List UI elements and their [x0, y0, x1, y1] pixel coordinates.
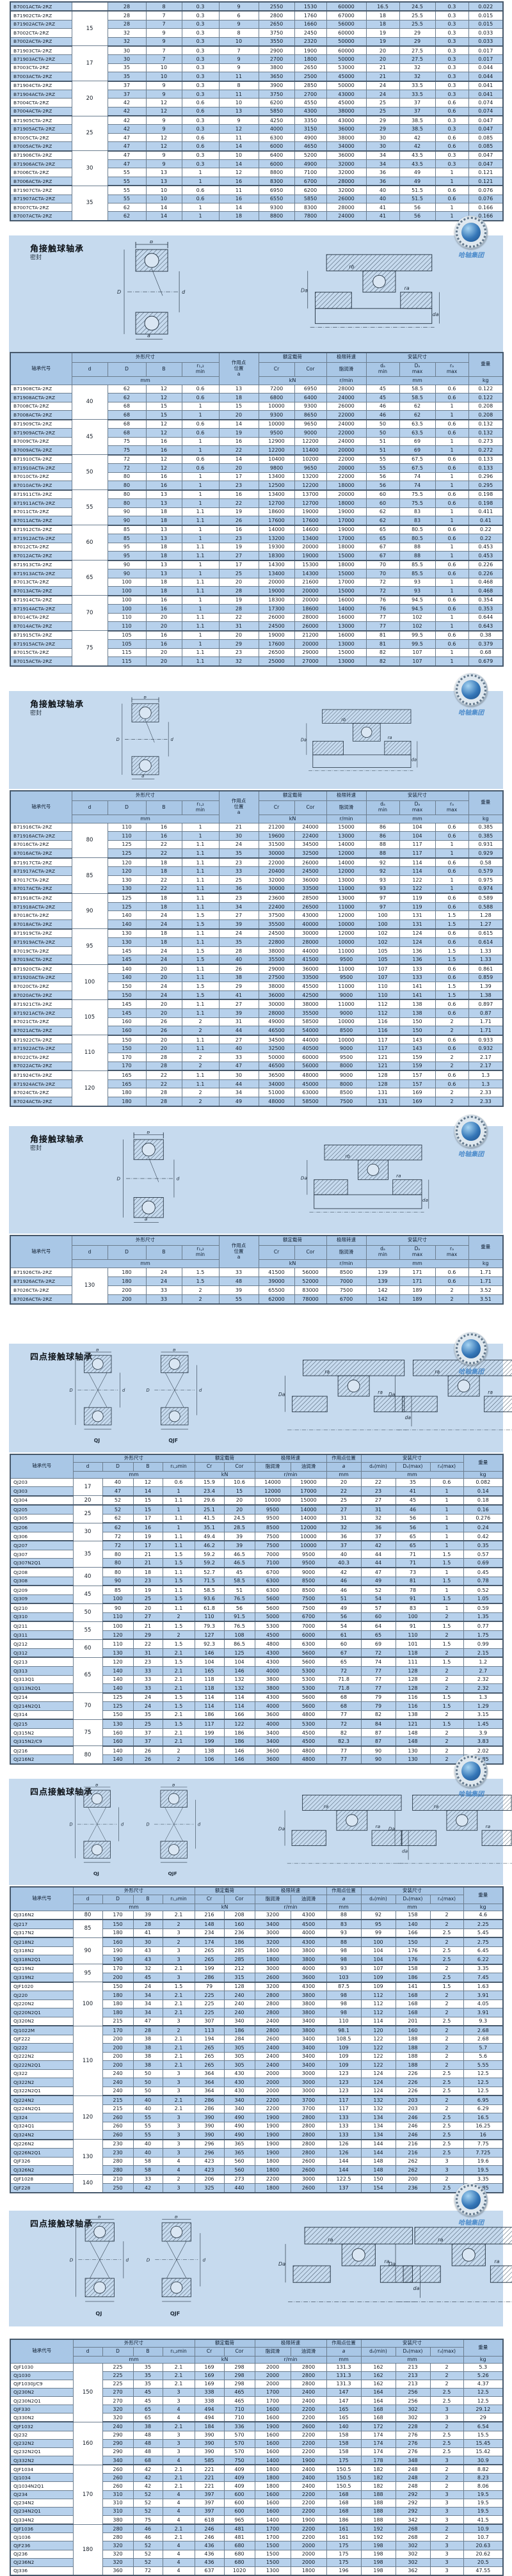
cell-value: 24 — [219, 929, 259, 938]
cell-value: 33500 — [294, 973, 326, 982]
cell-value: 0.99 — [463, 1639, 503, 1648]
cell-value: 16 — [219, 177, 259, 186]
cell-value: 146 — [195, 1648, 224, 1657]
cell-value: 13200 — [294, 472, 326, 481]
globe-icon — [461, 2190, 481, 2209]
dim-label-d: d — [171, 737, 174, 742]
cell-value: 114 — [195, 1693, 224, 1702]
cell-value: 50000 — [326, 37, 366, 46]
cell-value: 7500 — [255, 1541, 291, 1550]
company-logo: 哈轴集团 — [452, 673, 490, 717]
cell-value: 226 — [396, 2087, 430, 2095]
cell-value: 1 — [430, 1505, 463, 1514]
cell-value: 144 — [361, 2140, 396, 2149]
cell-value: 113 — [195, 2026, 224, 2035]
cell-value: 29 — [399, 29, 435, 37]
cell-value: 12 — [146, 107, 182, 116]
cell-value: 1 — [182, 168, 219, 177]
cell-model: QJ234N2 — [10, 2499, 73, 2507]
cell-value: 180 — [108, 1276, 146, 1285]
cell-value: 42 — [361, 1541, 396, 1550]
cell-value: 2400 — [255, 2017, 291, 2026]
cell-value: 50 — [366, 420, 399, 429]
cell-value: 40 — [133, 2149, 163, 2158]
table-row: QJ21155100211.579.376.5530070005464911.5… — [10, 1621, 503, 1630]
cell-value: 35500 — [294, 1008, 326, 1017]
cell-value: 1900 — [255, 2122, 291, 2131]
cell-value: 150 — [108, 982, 146, 991]
cell-value: 125 — [108, 902, 146, 911]
cell-value: 54000 — [294, 1026, 326, 1035]
cell-value: 2200 — [255, 2095, 291, 2104]
cell-value: 3.35 — [463, 2175, 503, 2184]
cell-value: 140 — [326, 2422, 361, 2431]
cell-value: 12 — [219, 125, 259, 133]
cell-model: QJF222 — [10, 2035, 73, 2044]
cell-value: 2200 — [291, 2524, 326, 2533]
cell-value: 365 — [224, 2140, 255, 2149]
cell-value: 165 — [108, 1070, 146, 1079]
cell-value: 1 — [435, 876, 468, 885]
cell-value: 10200 — [294, 455, 326, 464]
cell-value: 31500 — [259, 840, 294, 849]
table-row: QJ2031740120.615.910.614000190002022350.… — [10, 1478, 503, 1487]
cell-value: 0.59 — [463, 1603, 503, 1612]
cell-value: 110 — [366, 982, 399, 991]
cell-value: 390 — [195, 2431, 224, 2439]
cell-value: 1800 — [255, 2157, 291, 2166]
cell-value: 436 — [195, 2550, 224, 2558]
cell-value: 3650 — [259, 72, 294, 81]
cell-value: 16000 — [326, 613, 366, 622]
cell-model: B7016ACTA-2RZ — [10, 849, 72, 858]
cell-value: 1.35 — [463, 1612, 503, 1621]
cell-model: QJ224N2 — [10, 2095, 73, 2104]
cell-value: 0.6 — [435, 534, 468, 543]
cell-value: 131.3 — [326, 2380, 361, 2388]
cell-model: B7014CTA-2RZ — [10, 613, 72, 622]
cell-value: 28000 — [294, 613, 326, 622]
cell-value: 20000 — [259, 578, 294, 587]
cell-value: 14000 — [291, 1505, 326, 1514]
cell-value: 46.5 — [224, 1559, 255, 1568]
cell-value: 2000 — [255, 2380, 291, 2388]
cell-value: 114 — [361, 2017, 396, 2026]
cell-value: 0.614 — [468, 938, 503, 947]
cell-value: 0.121 — [468, 168, 503, 177]
cell-model: B7017ACTA-2RZ — [10, 884, 72, 893]
cell-value: 2.1 — [163, 1675, 195, 1684]
cell-value: 38 — [133, 2052, 163, 2061]
cell-value: 100 — [366, 911, 399, 920]
cell-model: QJ220N2Q1 — [10, 2008, 73, 2017]
cell-value: 213 — [396, 2380, 430, 2388]
cell-value: 158 — [326, 2447, 361, 2456]
cell-value: 19.5 — [463, 2166, 503, 2175]
table-row: B71922CTA-2RZ110150201.12734500440001000… — [10, 1035, 503, 1044]
cell-value: 1600 — [255, 2413, 291, 2422]
cell-value: 2 — [430, 1964, 463, 1973]
cell-value: 16 — [463, 2131, 503, 2140]
cell-value: 105 — [108, 640, 146, 649]
cell-value: 6700 — [291, 1612, 326, 1621]
cell-value: 45 — [224, 1568, 255, 1577]
cell-value: 1 — [182, 561, 219, 569]
cell-bore: 25 — [72, 116, 108, 151]
cell-value: 6950 — [294, 385, 326, 394]
cell-value: 74 — [361, 1657, 396, 1666]
cell-value: 69 — [399, 437, 435, 446]
cell-value: 0.132 — [468, 420, 503, 429]
cell-model: QJF1028 — [10, 2175, 73, 2184]
cell-model: B7007ACTA-2RZ — [10, 212, 72, 221]
cell-value: 109 — [361, 1973, 396, 1982]
cell-value: 28 — [146, 1097, 182, 1106]
cell-value: 6700 — [255, 1568, 291, 1577]
cell-value: 16 — [146, 437, 182, 446]
cell-value: 465 — [224, 2397, 255, 2405]
cell-value: 93 — [399, 578, 435, 587]
cell-value: 2.1 — [163, 2380, 195, 2388]
cell-value: 4.6 — [463, 1911, 503, 1920]
cell-value: 27 — [219, 1035, 259, 1044]
cell-value: 0.3 — [182, 37, 219, 46]
cell-value: 7 — [146, 55, 182, 63]
cell-value: 3800 — [255, 1684, 291, 1693]
cell-value: 62 — [399, 411, 435, 420]
cell-value: 157 — [399, 1070, 435, 1079]
cell-value: 0.6 — [435, 142, 468, 151]
cell-value: 1.5 — [435, 911, 468, 920]
dim-label-ra2: ra — [488, 1389, 493, 1395]
cell-value: 94.5 — [399, 605, 435, 614]
cell-value: 162 — [361, 2363, 396, 2371]
cell-value: 2.33 — [468, 1088, 503, 1097]
cell-value: 10000 — [291, 1541, 326, 1550]
cell-value: 75 — [108, 446, 146, 455]
cell-value: 2.68 — [463, 2026, 503, 2035]
cell-value: 50 — [133, 2087, 163, 2095]
cell-value: 0.6 — [435, 464, 468, 473]
cell-value: 5300 — [291, 1666, 326, 1675]
cell-model: B7016CTA-2RZ — [10, 840, 72, 849]
cell-model: B71918ACTA-2RZ — [10, 902, 72, 911]
cell-value: 55 — [108, 177, 146, 186]
cell-bore: 120 — [73, 2095, 102, 2140]
cell-value: 236 — [224, 1928, 255, 1937]
cell-value: 158 — [326, 2431, 361, 2439]
cell-value: 14 — [146, 203, 182, 211]
cell-value: 138 — [399, 1008, 435, 1017]
cell-value: 82.3 — [326, 1737, 361, 1746]
cell-value: 60 — [326, 1639, 361, 1648]
cell-value: 2.5 — [430, 2069, 463, 2078]
cell-value: 1.5 — [163, 1550, 195, 1559]
cell-value: 4 — [163, 2166, 195, 2175]
cell-value: 44 — [361, 1559, 396, 1568]
table-row: QJ3042052151.129.620100001500025274510.1… — [10, 1496, 503, 1506]
cell-value: 48 — [133, 2447, 163, 2456]
cell-value: 170 — [108, 1061, 146, 1070]
cell-model: QJ205 — [10, 1505, 73, 1514]
cell-value: 84 — [361, 1719, 396, 1728]
table-row: B71916CTA-2RZ801101612121200240001500086… — [10, 823, 503, 832]
cell-value: 24 — [146, 955, 182, 964]
cell-value: 30 — [366, 133, 399, 141]
cell-model: QJ322 — [10, 2069, 73, 2078]
cell-value: 4300 — [291, 1937, 326, 1946]
cell-value: 10.6 — [224, 1478, 255, 1487]
cell-model: B71924ACTA-2RZ — [10, 1079, 72, 1088]
cell-value: 364 — [195, 2069, 224, 2078]
cell-value: 72 — [102, 1532, 133, 1541]
cell-value: 65 — [366, 534, 399, 543]
table-header: 轴承代号外形尺寸额定载荷极限转速作用点位置安装尺寸重量dDBr₁,₂minCrC… — [10, 1887, 503, 1911]
cell-value: 28000 — [259, 1008, 294, 1017]
cell-value: 83000 — [294, 1285, 326, 1294]
cell-model: B71908ACTA-2RZ — [10, 394, 72, 402]
cell-value: 2.17 — [468, 1053, 503, 1061]
section-subtitle: 密封 — [30, 708, 42, 717]
cell-value: 0.6 — [163, 1478, 195, 1487]
cell-value: 114 — [399, 858, 435, 867]
cell-value: 180 — [108, 1088, 146, 1097]
cell-value: 134 — [361, 2122, 396, 2131]
cell-value: 55 — [219, 1294, 259, 1304]
cell-value: 128 — [396, 1675, 430, 1684]
cell-value: 0.276 — [463, 1514, 503, 1523]
cell-value: 2 — [163, 1746, 195, 1755]
cell-value: 3 — [163, 2069, 195, 2078]
cell-value: 320 — [102, 2413, 133, 2422]
cell-model: QJ315N2/C9 — [10, 1737, 73, 1746]
cell-bore: 95 — [72, 929, 108, 964]
cell-value: 97 — [366, 893, 399, 902]
cell-value: 1.1 — [182, 999, 219, 1008]
cell-value: 100 — [108, 587, 146, 596]
cell-value: 21 — [133, 1559, 163, 1568]
cell-value: 0.3 — [182, 2, 219, 11]
cell-value: 2.1 — [163, 2035, 195, 2044]
cell-value: 160 — [102, 1728, 133, 1737]
cell-value: 22 — [146, 1070, 182, 1079]
cell-value: 175 — [326, 2550, 361, 2558]
cell-value: 215 — [102, 2104, 133, 2113]
cell-value: 45 — [133, 2388, 163, 2396]
cell-value: 40.3 — [326, 1559, 361, 1568]
cell-value: 2.1 — [163, 2422, 195, 2431]
cell-model: QJ1034N2Q1 — [10, 2482, 73, 2490]
cell-value: 0.379 — [468, 640, 503, 649]
cell-value: 3000 — [291, 2069, 326, 2078]
cell-value: 226 — [396, 2078, 430, 2087]
cell-value: 20 — [146, 1008, 182, 1017]
cell-bore: 110 — [73, 2026, 102, 2095]
cell-value: 1 — [182, 640, 219, 649]
table-row: B71917CTA-2RZ85120181.123220002600014000… — [10, 858, 503, 867]
cell-value: 97 — [366, 902, 399, 911]
cell-value: 42 — [133, 2482, 163, 2490]
cell-value: 45000 — [294, 1079, 326, 1088]
cell-value: 133 — [326, 2122, 361, 2131]
cell-value: 68 — [133, 2456, 163, 2465]
cell-value: 165 — [326, 2405, 361, 2413]
cell-bore: 105 — [72, 999, 108, 1035]
cell-value: 2.1 — [163, 2061, 195, 2070]
cell-value: 68 — [108, 402, 146, 411]
cell-value: 0.3 — [182, 55, 219, 63]
cell-value: 2 — [435, 1088, 468, 1097]
cell-value: 28 — [146, 1088, 182, 1097]
cell-model: B71926CTA-2RZ — [10, 1268, 72, 1276]
cell-value: 10000 — [259, 420, 294, 429]
cell-value: 93 — [366, 876, 399, 885]
cell-value: 80 — [108, 499, 146, 508]
cell-value: 180 — [102, 1991, 133, 2000]
cell-value: 123 — [326, 2078, 361, 2087]
cell-value: 0.132 — [468, 429, 503, 438]
cell-value: 15000 — [326, 569, 366, 578]
cell-value: 0.6 — [435, 867, 468, 876]
cell-bore: 50 — [73, 1603, 102, 1621]
cell-value: 4550 — [294, 99, 326, 107]
cell-value: 276 — [396, 2439, 430, 2447]
cell-value: 32500 — [294, 849, 326, 858]
cell-value: 481 — [224, 2533, 255, 2541]
table-row: B71912CTA-2RZ608513116140001460019000658… — [10, 525, 503, 534]
cell-value: 1 — [435, 657, 468, 666]
cell-value: 1.1 — [163, 1603, 195, 1612]
cell-value: 2400 — [291, 2465, 326, 2474]
cell-value: 30.9 — [463, 2456, 503, 2465]
cell-value: 184 — [195, 2422, 224, 2431]
cell-value: 131 — [366, 1088, 399, 1097]
cell-model: QJ1022M — [10, 2026, 73, 2035]
cell-value: 225 — [102, 2371, 133, 2380]
cell-value: 17 — [219, 561, 259, 569]
cell-value: 2.5 — [430, 2447, 463, 2456]
cell-value: 2400 — [255, 2061, 291, 2070]
cell-value: 112 — [361, 1991, 396, 2000]
cell-value: 52 — [133, 2550, 163, 2558]
cell-value: 1 — [435, 507, 468, 516]
cell-value: 26000 — [294, 858, 326, 867]
table-row: B71920CTA-2RZ100140201.12629000360001100… — [10, 964, 503, 973]
cell-value: 56 — [326, 1612, 361, 1621]
cell-value: 90 — [102, 1603, 133, 1612]
cell-value: 150 — [102, 1982, 133, 1991]
cell-value: 165 — [326, 2413, 361, 2422]
cell-value: 35 — [396, 1478, 430, 1487]
cell-value: 32500 — [259, 1044, 294, 1053]
cell-value: 1.5 — [435, 990, 468, 999]
cell-value: 1 — [430, 1586, 463, 1594]
dim-label-B: B — [147, 1131, 150, 1135]
cell-value: 0.047 — [468, 116, 503, 125]
table-row: QJ218N290160302174186320043008810015022.… — [10, 1937, 503, 1946]
cell-value: 23 — [219, 893, 259, 902]
cell-value: 2400 — [255, 2052, 291, 2061]
cell-value: 7500 — [326, 1285, 366, 1294]
cell-value: 1900 — [255, 2131, 291, 2140]
globe-icon — [461, 223, 481, 242]
cell-value: 2.1 — [163, 1991, 195, 2000]
cell-bore: 130 — [73, 2140, 102, 2175]
cell-value: 175 — [326, 2541, 361, 2550]
cell-value: 1.5 — [163, 1702, 195, 1711]
cell-value: 570 — [224, 2439, 255, 2447]
cell-model: B71913CTA-2RZ — [10, 561, 72, 569]
cell-value: 88 — [366, 849, 399, 858]
cell-value: 85.5 — [399, 561, 435, 569]
cell-value: 10000 — [255, 1496, 291, 1506]
cell-model: QJ212 — [10, 1639, 73, 1648]
cell-value: 14000 — [255, 1478, 291, 1487]
cell-model: B7002ACTA-2RZ — [10, 37, 72, 46]
cell-value: 32000 — [326, 160, 366, 168]
cell-value: 286 — [195, 2104, 224, 2113]
cell-value: 1.1 — [182, 1044, 219, 1053]
cell-value: 18 — [366, 20, 399, 28]
cell-model: QJ232N2Q1 — [10, 2447, 73, 2456]
cell-value: 14000 — [291, 1514, 326, 1523]
cell-model: QJ224N2Q1 — [10, 2104, 73, 2113]
cell-value: 315 — [224, 1973, 255, 1982]
cell-value: 38 — [133, 2061, 163, 2070]
cell-value: 47 — [361, 1568, 396, 1577]
dim-label-da: da — [433, 312, 439, 317]
cell-value: 31 — [219, 622, 259, 631]
cell-value: 13000 — [326, 640, 366, 649]
cell-value: 20 — [146, 1044, 182, 1053]
cell-value: 6300 — [259, 133, 294, 141]
cell-value: 150 — [108, 1035, 146, 1044]
cell-value: 2.1 — [163, 2474, 195, 2482]
cell-value: 8500 — [291, 1577, 326, 1586]
cell-bore: 95 — [73, 1964, 102, 1982]
cell-value: 1 — [435, 446, 468, 455]
cell-value: 124 — [361, 2078, 396, 2087]
cell-value: 35 — [108, 63, 146, 72]
cell-value: 34500 — [294, 840, 326, 849]
cell-value: 390 — [195, 2131, 224, 2140]
cell-value: 77 — [366, 613, 399, 622]
cell-value: 0.017 — [468, 46, 503, 55]
cell-value: 6300 — [255, 1586, 291, 1594]
cell-value: 52 — [133, 2490, 163, 2499]
cell-value: 2.33 — [468, 1097, 503, 1106]
cell-value: 19000 — [294, 552, 326, 561]
cell-value: 46 — [366, 411, 399, 420]
cell-value: 24000 — [326, 212, 366, 221]
cell-value: 52 — [133, 2558, 163, 2566]
cell-value: 9500 — [255, 1505, 291, 1514]
cell-value: 35 — [133, 2380, 163, 2388]
cell-value: 17000 — [326, 578, 366, 587]
bearing-cross-section-qj-diagram: B D d QJ — [68, 1784, 126, 1879]
cell-value: 52 — [133, 2499, 163, 2507]
cell-model: QJ311 — [10, 1630, 73, 1639]
cell-value: 17600 — [259, 516, 294, 525]
cell-value: 409 — [224, 2465, 255, 2474]
cell-value: 131.3 — [326, 2371, 361, 2380]
cell-value: 560 — [224, 2166, 255, 2175]
cell-value: 164 — [361, 2397, 396, 2405]
cell-value: 174 — [195, 1937, 224, 1946]
cell-value: 0.353 — [468, 605, 503, 614]
cell-value: 11 — [219, 72, 259, 81]
cell-value: 26 — [219, 964, 259, 973]
